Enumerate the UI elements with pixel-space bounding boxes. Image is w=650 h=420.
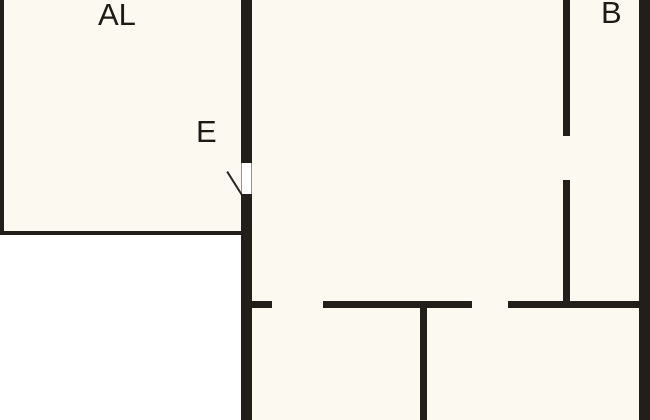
- floor-plan-canvas: AL E B: [0, 0, 650, 420]
- wall-horizontal-stub: [252, 301, 272, 308]
- wall-al-room-bottom: [0, 231, 252, 235]
- room-label-al: AL: [98, 0, 136, 30]
- wall-vertical-bottom: [420, 301, 427, 420]
- wall-horizontal-right: [508, 301, 650, 308]
- room-label-e: E: [196, 116, 217, 147]
- wall-center-lower: [241, 194, 252, 420]
- wall-horizontal-middle: [323, 301, 472, 308]
- wall-right-outer: [639, 0, 650, 420]
- wall-b-room-left-lower: [563, 180, 570, 307]
- door-opening-center-wall: [241, 163, 252, 194]
- exterior-area: [0, 235, 241, 420]
- wall-left-outer: [0, 0, 4, 235]
- room-label-b: B: [601, 0, 622, 28]
- wall-b-room-left-upper: [563, 0, 570, 136]
- wall-center-upper: [241, 0, 252, 163]
